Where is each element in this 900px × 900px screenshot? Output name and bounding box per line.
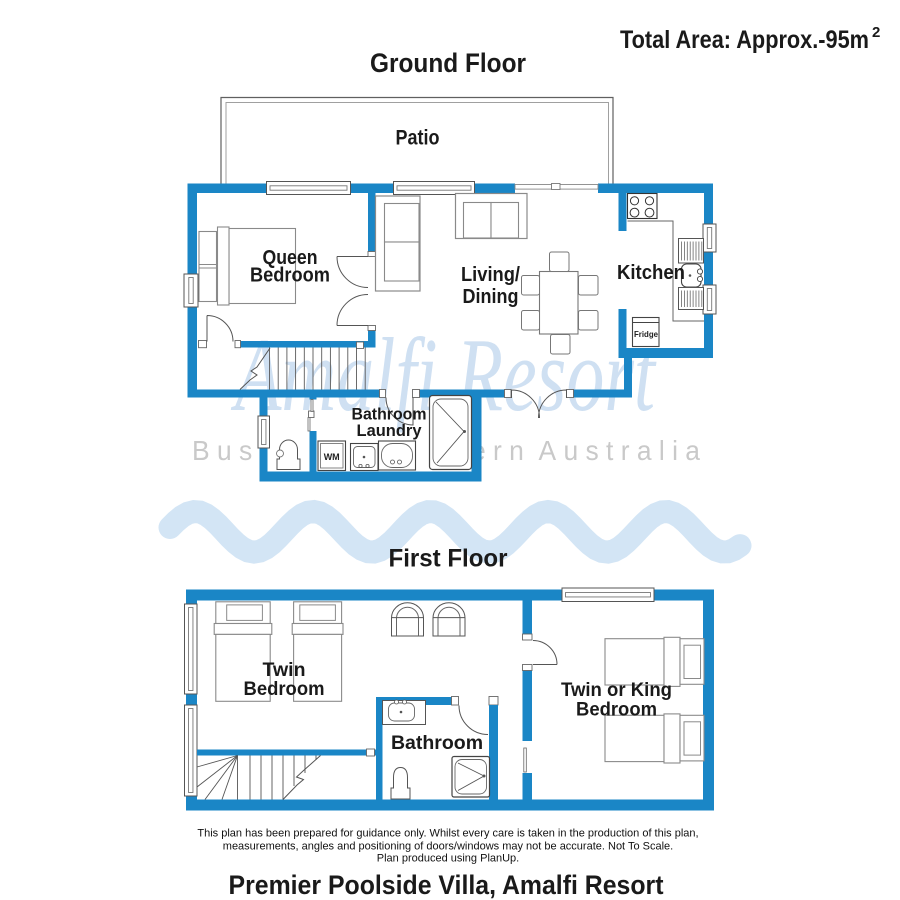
svg-text:Bedroom: Bedroom bbox=[250, 265, 330, 287]
svg-text:Bedroom: Bedroom bbox=[576, 699, 657, 721]
svg-text:Plan produced using PlanUp.: Plan produced using PlanUp. bbox=[377, 853, 519, 865]
svg-text:WM: WM bbox=[324, 452, 340, 462]
svg-text:First Floor: First Floor bbox=[389, 545, 508, 573]
svg-text:Premier Poolside Villa, Amalfi: Premier Poolside Villa, Amalfi Resort bbox=[229, 870, 664, 900]
svg-text:2: 2 bbox=[872, 24, 880, 41]
svg-text:Bathroom: Bathroom bbox=[391, 732, 483, 754]
svg-text:Laundry: Laundry bbox=[357, 421, 423, 440]
svg-text:measurements, angles and posit: measurements, angles and positioning of … bbox=[223, 841, 673, 853]
svg-text:Kitchen: Kitchen bbox=[617, 262, 685, 284]
svg-text:Living/: Living/ bbox=[461, 264, 520, 286]
svg-text:Total Area: Approx.-95m: Total Area: Approx.-95m bbox=[620, 26, 869, 54]
svg-text:Ground Floor: Ground Floor bbox=[370, 48, 526, 78]
svg-text:Patio: Patio bbox=[396, 126, 440, 150]
svg-text:Bedroom: Bedroom bbox=[244, 678, 325, 700]
svg-text:This plan has been prepared fo: This plan has been prepared for guidance… bbox=[197, 828, 698, 840]
svg-text:Fridge: Fridge bbox=[634, 329, 658, 339]
svg-text:Dining: Dining bbox=[463, 286, 519, 308]
